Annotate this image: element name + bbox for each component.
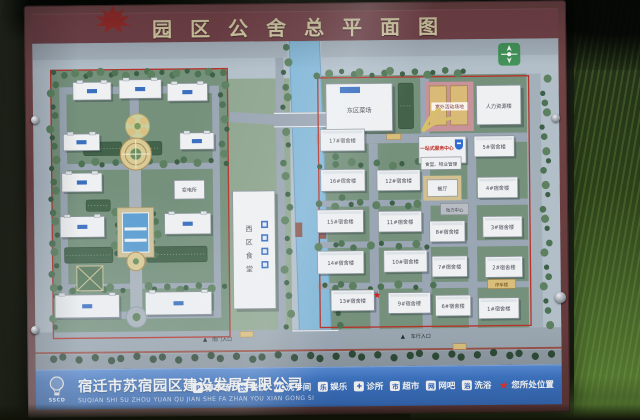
legend-label: 诊所 [366, 380, 383, 392]
dormitory-building: 14#宿舍楼 [318, 251, 366, 276]
parking-deck: 停车楼 [487, 279, 515, 289]
apartment-building [180, 131, 216, 152]
dormitory-label: 5#宿舍楼 [482, 142, 506, 150]
legend-item: 网网吧 [426, 379, 455, 391]
map-legend: P停车场饮餐饮WC洗手间乐娱乐✚诊所市超市网网吧浴洗浴★您所处位置 [326, 378, 554, 392]
dormitory-building: 17#宿舍楼 [320, 129, 366, 153]
dormitory-label: 17#宿舍楼 [329, 136, 356, 144]
apartment-building [167, 81, 209, 103]
south-road [35, 327, 561, 370]
apartment-building [60, 214, 106, 239]
legend-item: P停车场 [193, 382, 231, 394]
apartment-label-chip [82, 304, 92, 308]
service-center-label: 一站式服务中心 [420, 145, 454, 152]
apartment-label-chip [135, 87, 145, 91]
bath-icon: 浴 [462, 380, 472, 390]
west-canteen-label-char: 区 [246, 238, 253, 247]
frame-bolt [555, 292, 566, 303]
west-canteen-label-char: 西 [245, 224, 252, 233]
frame-bolt [31, 326, 39, 334]
west-canteen-label-char: 堂 [246, 264, 253, 273]
legend-item: 市超市 [390, 380, 419, 392]
dormitory-building: 3#宿舍楼 [483, 216, 524, 239]
dormitory-building: 6#宿舍楼 [435, 295, 472, 318]
dormitory-building: 4#宿舍楼 [477, 177, 519, 200]
restroom-icon: WC [274, 382, 284, 392]
logo-text: SSCD [49, 397, 66, 403]
west-canteen-label-char: 食 [246, 251, 253, 260]
legend-label: 网吧 [438, 379, 455, 391]
you-are-here-marker: ★ [373, 290, 381, 301]
legend-label: 超市 [402, 380, 419, 392]
apartment-building [73, 80, 113, 102]
legend-item: 乐娱乐 [318, 380, 347, 392]
dormitory-building: 7#宿舍楼 [432, 256, 469, 279]
dormitory-building: 12#宿舍楼 [377, 170, 422, 193]
maple-leaf-icon [90, 4, 136, 34]
dining-icon: 饮 [238, 383, 248, 393]
dormitory-label: 6#宿舍楼 [441, 302, 465, 310]
apartment-label-chip [77, 180, 87, 184]
legend-label: 餐饮 [250, 381, 267, 393]
balloon-icon [48, 376, 66, 396]
substation-label: 变电所 [182, 187, 197, 194]
dormitory-building: 1#宿舍楼 [479, 298, 521, 321]
legend-item: ✚诊所 [354, 380, 383, 392]
sign-board: 园区公舍总平面图 [24, 0, 570, 418]
board-title: 园区公舍总平面图 [134, 10, 456, 42]
hr-label: 人力资源楼 [486, 102, 513, 110]
photo-of-signboard: 园区公舍总平面图 [0, 0, 640, 420]
dormitory-label: 8#宿舍楼 [436, 228, 460, 236]
dormitory-building: 10#宿舍楼 [384, 250, 429, 274]
internet-cafe-icon: 网 [426, 381, 436, 391]
svg-text:▲: ▲ [401, 334, 406, 340]
apartment-label-chip [182, 90, 192, 94]
legend-label: 洗手间 [286, 381, 312, 393]
legend-label: 您所处位置 [511, 378, 554, 390]
dormitory-building: 16#宿舍楼 [321, 169, 367, 193]
dormitory-building: 11#宿舍楼 [378, 211, 423, 234]
svg-text:▲: ▲ [203, 337, 208, 343]
apartment-label-chip [192, 139, 202, 143]
shield-icon [455, 139, 463, 149]
parking-icon: P [193, 383, 203, 393]
apartment-building [63, 132, 101, 153]
west-canteen-building: 西区食堂 [233, 191, 279, 312]
market-label: 东区菜场 [347, 105, 372, 114]
frame-bolt [31, 116, 39, 124]
dormitory-label: 3#宿舍楼 [491, 223, 515, 231]
north-road-east [321, 38, 558, 57]
clinic-icon: ✚ [354, 381, 364, 391]
apartment-building [62, 171, 104, 194]
dormitory-building: 15#宿舍楼 [317, 209, 365, 234]
footer-bar: SSCD 宿迁市苏宿园区建设发展有限公司 SUQIAN SHI SU ZHOU … [36, 364, 562, 410]
east-market-building: 东区菜场 [326, 83, 396, 134]
dormitory-building: 2#宿舍楼 [485, 256, 524, 279]
legend-item: 饮餐饮 [238, 381, 267, 393]
frame-bolt [552, 114, 560, 122]
north-road [32, 41, 287, 60]
company-pinyin: SUQIAN SHI SU ZHOU YUAN QU JIAN SHE FA Z… [78, 394, 314, 403]
entertainment-icon: 乐 [318, 382, 328, 392]
dormitory-label: 4#宿舍楼 [486, 184, 510, 192]
legend-label: 停车场 [205, 382, 231, 394]
legend-label: 洗浴 [474, 379, 491, 391]
dormitory-building: 13#宿舍楼 [331, 290, 376, 313]
substation-building: 变电所 [174, 180, 204, 199]
power-center-building: 动力中心 [440, 203, 468, 215]
dormitory-building: 5#宿舍楼 [474, 136, 516, 159]
restaurant-label: 餐厅 [437, 185, 447, 192]
dormitory-label: 9#宿舍楼 [398, 299, 422, 307]
apartment-building [119, 77, 163, 100]
south-gate-label: 南门入口 [212, 336, 232, 343]
service-center-building: 一站式服务中心 食堂、物业管理 [419, 136, 469, 170]
activity-ground: 室外活动场地 [422, 81, 474, 131]
legend-item: WC洗手间 [274, 381, 312, 393]
apartment-building [55, 293, 122, 321]
legend-item: ★您所处位置 [498, 378, 554, 391]
apartment-label-chip [76, 140, 86, 144]
apartment-label-chip [87, 89, 97, 93]
apartment-building [145, 289, 214, 317]
north-arrow-icon [498, 43, 520, 66]
dormitory-label: 16#宿舍楼 [330, 177, 357, 185]
site-plan-map: 变电所 西区食堂 [32, 38, 561, 369]
shadow-bottom [0, 404, 640, 420]
market-logo-chip [340, 87, 360, 93]
legend-item: 浴洗浴 [462, 379, 491, 391]
pool [122, 213, 149, 252]
restaurant-building: 餐厅 [423, 175, 461, 200]
company-logo: SSCD [44, 376, 70, 403]
hr-building: 人力资源楼 [476, 85, 524, 128]
supermarket-icon: 市 [390, 381, 400, 391]
apartment-label-chip [173, 301, 183, 305]
east-gate-label: 车行入口 [411, 333, 431, 340]
dormitory-label: 1#宿舍楼 [487, 304, 511, 312]
dormitory-building: 8#宿舍楼 [430, 221, 467, 244]
apartment-building [165, 211, 213, 236]
apartment-label-chip [77, 225, 87, 229]
dormitory-building: 9#宿舍楼 [388, 292, 432, 315]
legend-label: 娱乐 [330, 380, 347, 392]
dormitory-label: 7#宿舍楼 [438, 263, 462, 271]
you-are-here-star-icon: ★ [498, 379, 509, 391]
dormitory-label: 2#宿舍楼 [492, 263, 516, 271]
apartment-label-chip [183, 222, 193, 226]
